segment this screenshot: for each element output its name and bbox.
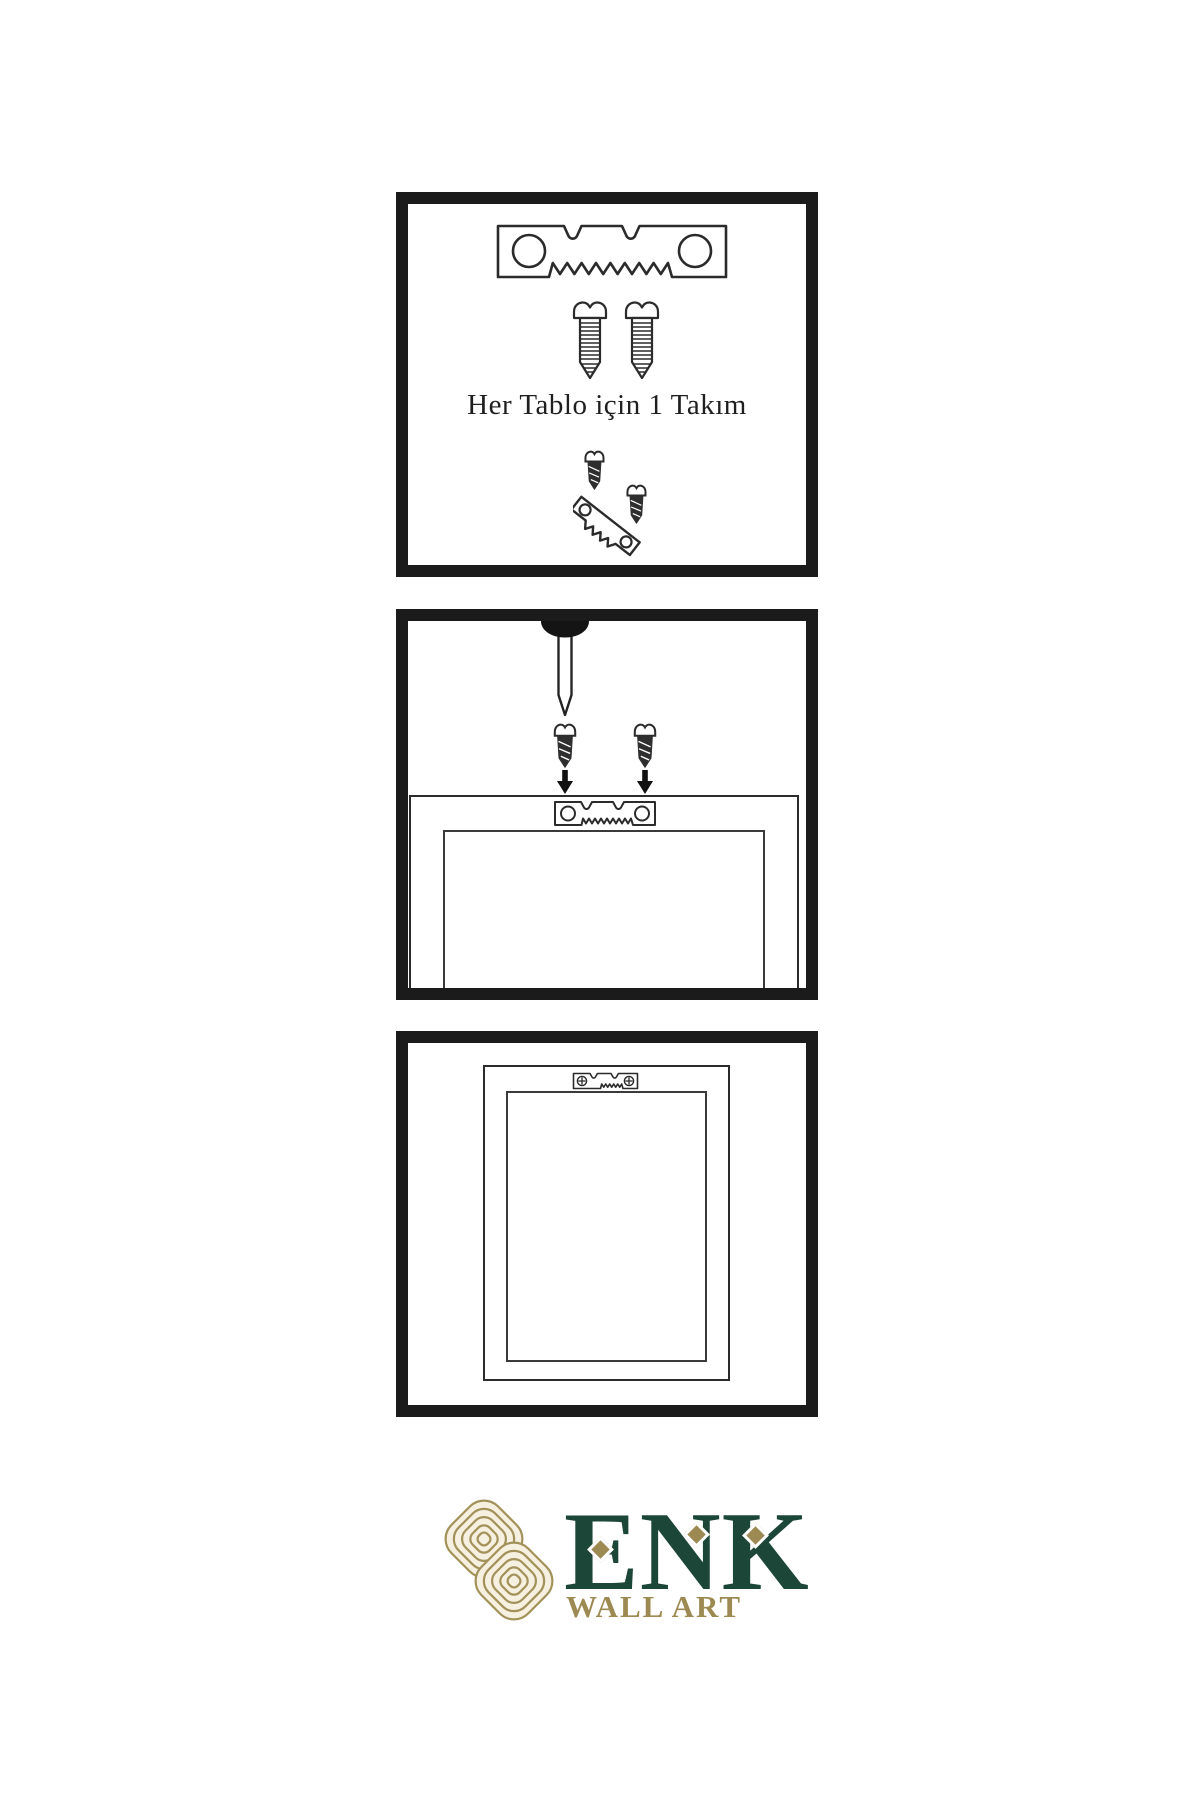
frame-back-panel (506, 1091, 707, 1362)
brand-subtitle: WALL ART (566, 1591, 742, 1622)
dark-screw-icon (627, 486, 645, 524)
screw-icon (572, 301, 608, 381)
dark-screw-icon (552, 721, 578, 771)
step-panel-hanging (396, 1031, 818, 1417)
kit-caption: Her Tablo için 1 Takım (408, 389, 806, 422)
sawtooth-hanger-icon (553, 800, 657, 827)
dark-screw-icon (585, 452, 603, 490)
down-arrow-icon (557, 770, 573, 794)
tilted-sawtooth-hanger (573, 497, 640, 561)
dark-screw-icon (632, 721, 658, 771)
screw-icon (624, 301, 660, 381)
knot-emblem-icon (435, 1492, 563, 1628)
step-panel-mounting (396, 609, 818, 1000)
step-panel-hardware-kit: Her Tablo için 1 Takım (396, 192, 818, 577)
mounted-sawtooth-hanger-icon (572, 1072, 639, 1090)
frame-back-panel (443, 830, 765, 1000)
down-arrow-icon (637, 770, 653, 794)
hanger-assembly-detail-icon (573, 450, 673, 565)
wall-nail-icon (540, 621, 590, 721)
sawtooth-hanger-icon (494, 222, 730, 280)
instruction-sheet: Her Tablo için 1 Takım (0, 0, 1200, 1800)
